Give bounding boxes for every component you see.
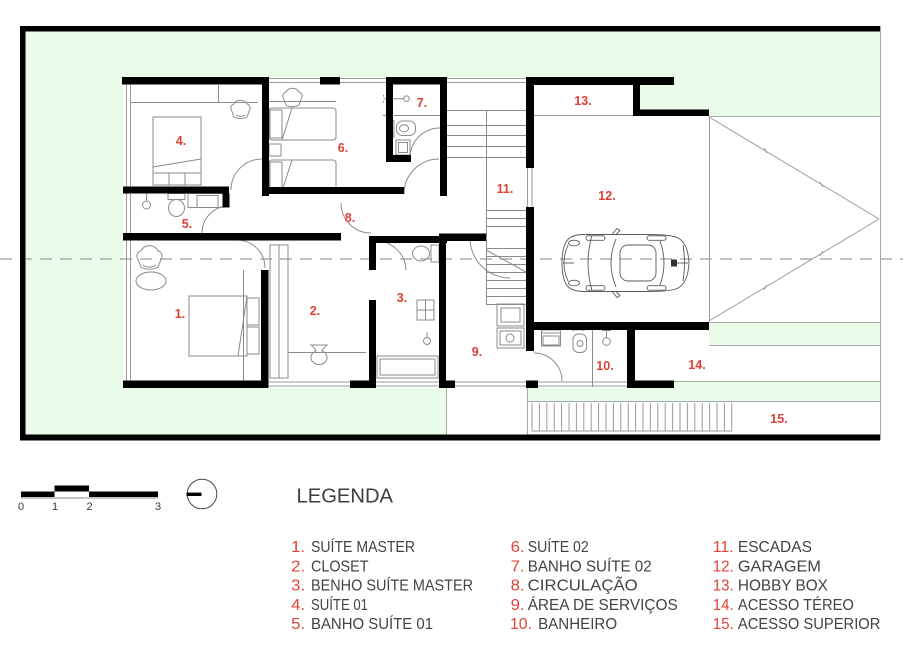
svg-text:ACESSO SUPERIOR: ACESSO SUPERIOR (738, 616, 881, 633)
svg-text:2.: 2. (291, 558, 305, 575)
svg-text:7.: 7. (417, 96, 427, 110)
svg-text:12.: 12. (713, 558, 734, 575)
svg-text:8.: 8. (345, 211, 355, 225)
svg-text:15.: 15. (770, 412, 787, 426)
svg-text:9.: 9. (472, 345, 482, 359)
svg-text:HOBBY BOX: HOBBY BOX (738, 578, 828, 595)
svg-text:2: 2 (86, 501, 92, 513)
svg-text:1.: 1. (175, 307, 185, 321)
svg-text:12.: 12. (598, 189, 615, 203)
svg-text:ESCADAS: ESCADAS (738, 539, 812, 556)
svg-text:GARAGEM: GARAGEM (738, 558, 821, 575)
svg-text:SUÍTE 02: SUÍTE 02 (528, 537, 589, 556)
svg-text:CIRCULAÇÃO: CIRCULAÇÃO (528, 575, 638, 595)
svg-text:13.: 13. (713, 578, 734, 595)
svg-text:10.: 10. (596, 359, 613, 373)
svg-text:0: 0 (18, 501, 24, 513)
svg-text:4.: 4. (176, 134, 186, 148)
svg-text:SUÍTE 01: SUÍTE 01 (311, 595, 368, 614)
svg-text:ACESSO TÉREO: ACESSO TÉREO (738, 595, 854, 614)
svg-text:1: 1 (52, 501, 58, 513)
svg-text:3: 3 (155, 501, 161, 513)
svg-text:5.: 5. (291, 616, 305, 633)
svg-text:CLOSET: CLOSET (311, 558, 369, 575)
svg-text:13.: 13. (574, 94, 591, 108)
svg-text:ÁREA DE SERVIÇOS: ÁREA DE SERVIÇOS (528, 595, 678, 614)
svg-text:11.: 11. (713, 539, 734, 556)
svg-text:BANHO SUÍTE 02: BANHO SUÍTE 02 (528, 556, 652, 575)
svg-text:6.: 6. (511, 539, 525, 556)
svg-text:9.: 9. (511, 597, 525, 614)
svg-text:2.: 2. (310, 304, 320, 318)
svg-text:6.: 6. (338, 141, 348, 155)
svg-text:3.: 3. (397, 291, 407, 305)
svg-text:4.: 4. (291, 597, 305, 614)
svg-text:BANHEIRO: BANHEIRO (538, 616, 617, 633)
svg-text:BENHO SUÍTE MASTER: BENHO SUÍTE MASTER (311, 576, 473, 595)
svg-text:14.: 14. (713, 597, 734, 614)
svg-text:14.: 14. (688, 358, 705, 372)
svg-text:11.: 11. (497, 182, 514, 196)
svg-text:3.: 3. (291, 578, 305, 595)
svg-text:BANHO SUÍTE 01: BANHO SUÍTE 01 (311, 614, 433, 633)
svg-text:8.: 8. (511, 578, 525, 595)
svg-text:5.: 5. (182, 217, 192, 231)
svg-text:1.: 1. (291, 539, 305, 556)
svg-text:7.: 7. (511, 558, 525, 575)
svg-text:SUÍTE MASTER: SUÍTE MASTER (311, 537, 415, 556)
svg-text:10.: 10. (510, 616, 532, 633)
svg-text:15.: 15. (713, 616, 734, 633)
svg-text:LEGENDA: LEGENDA (297, 485, 394, 508)
